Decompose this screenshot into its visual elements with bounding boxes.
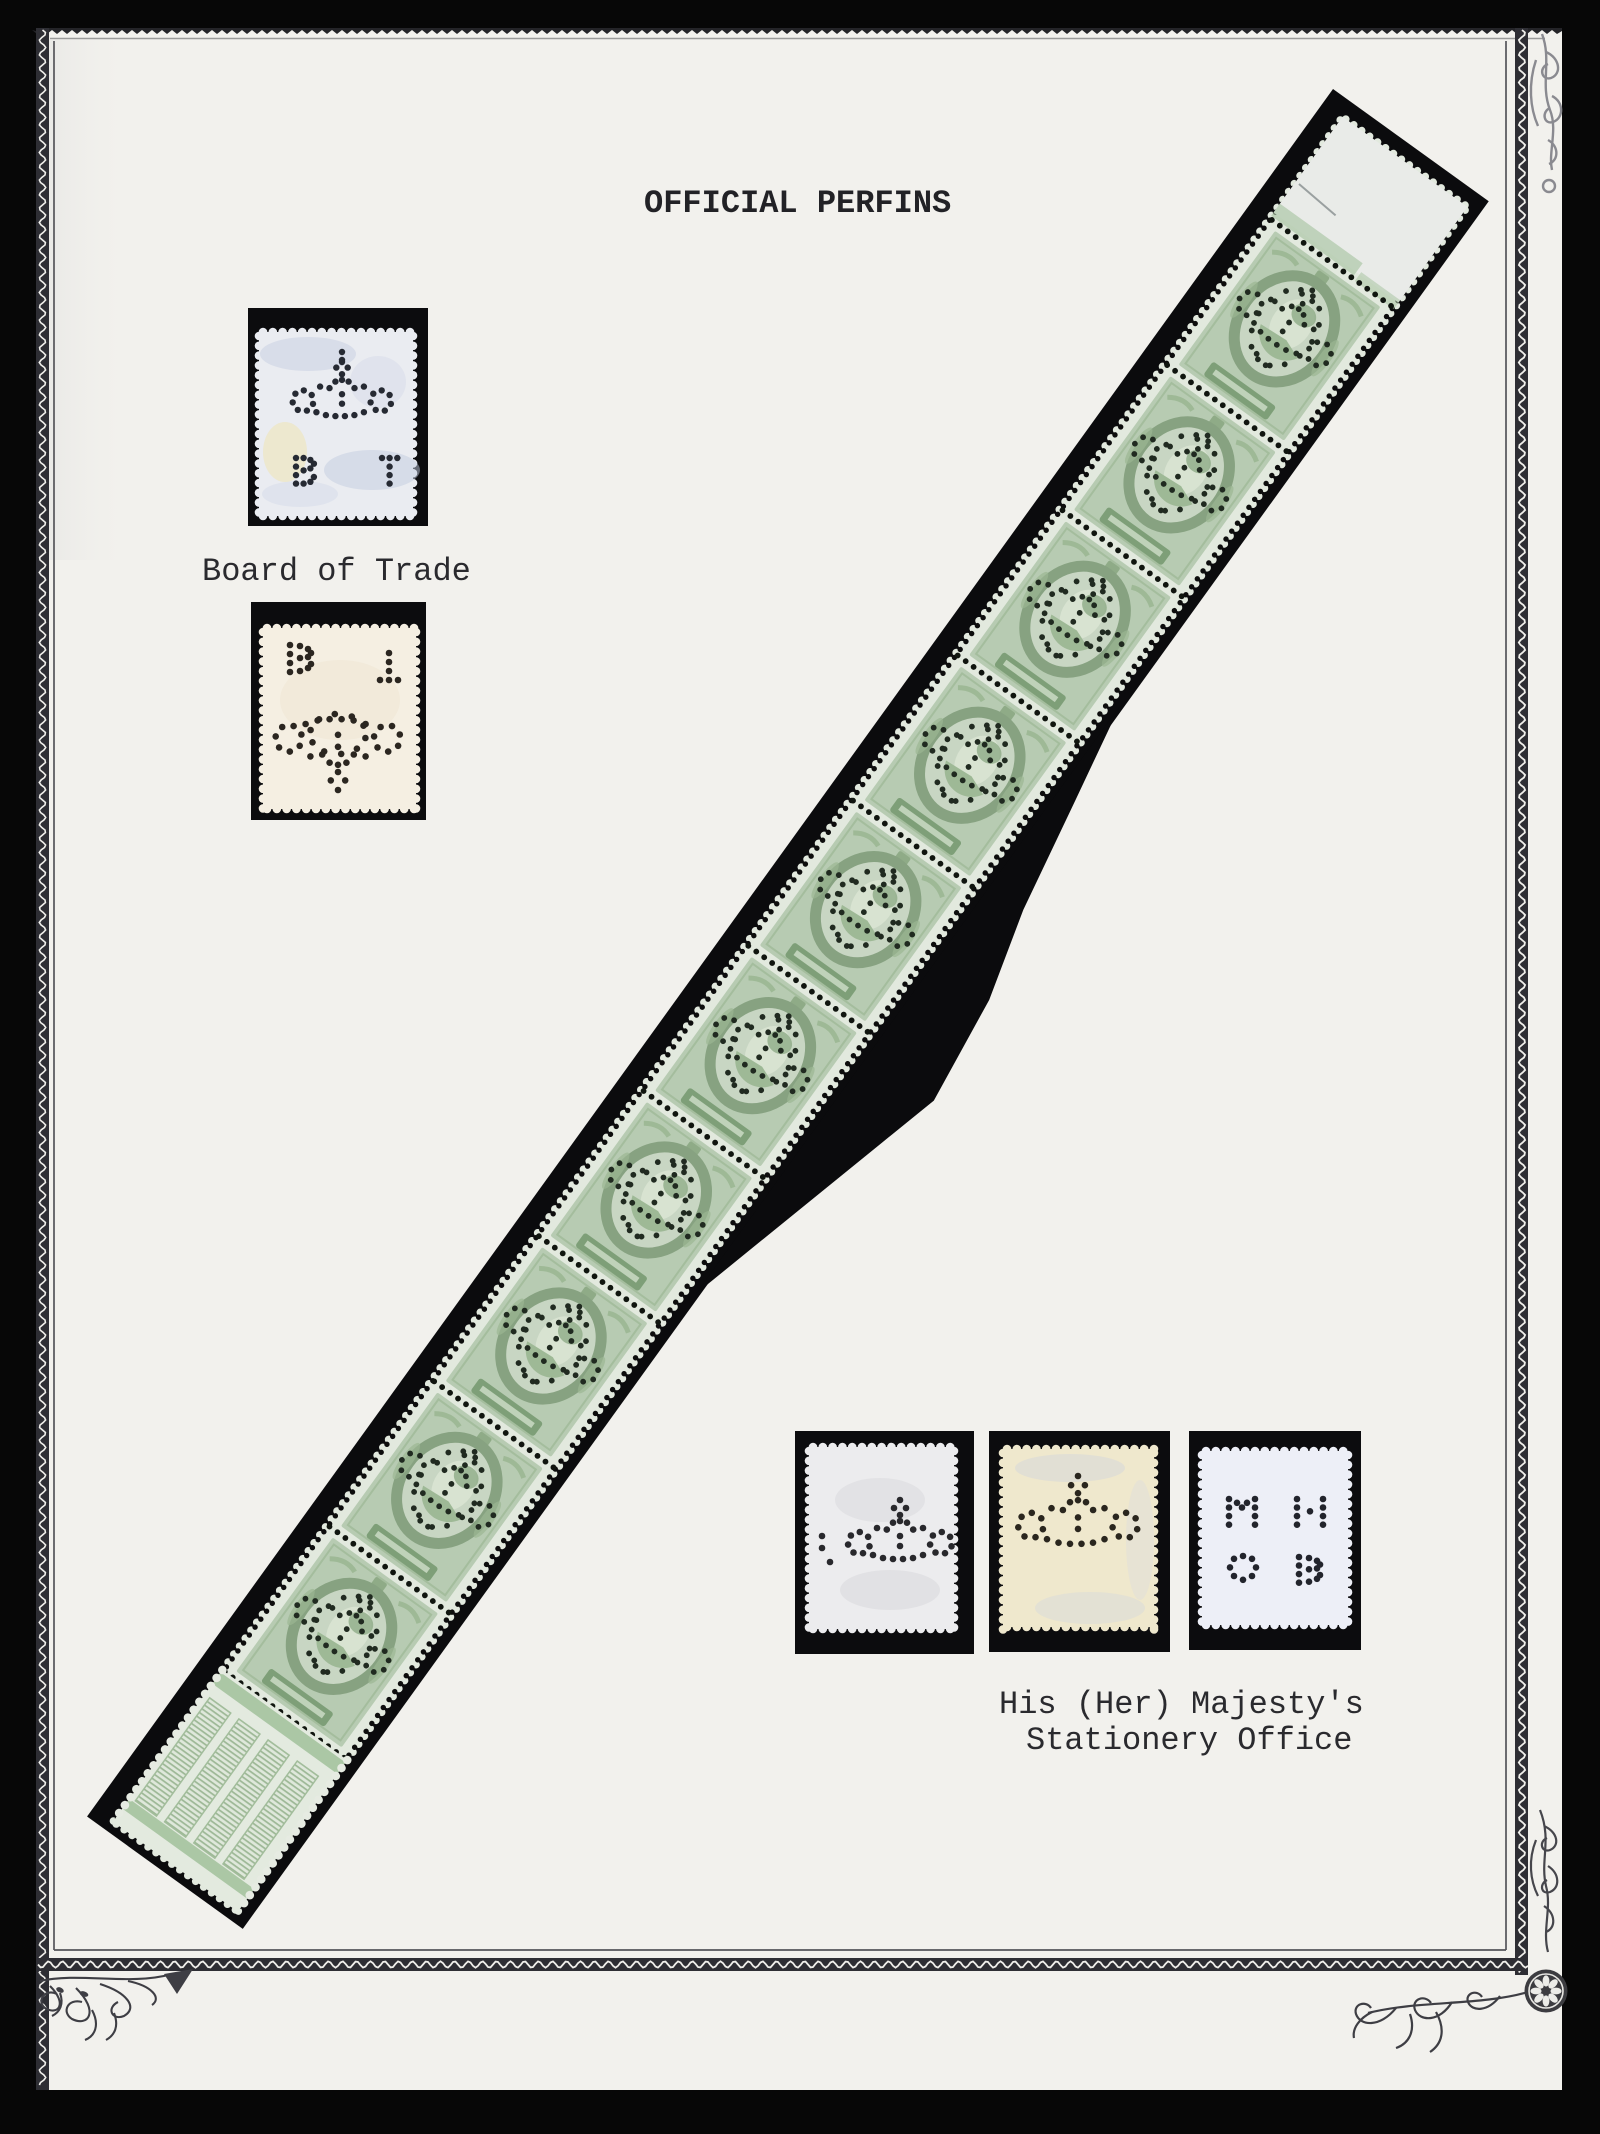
svg-text:OFFICIAL PERFINS: OFFICIAL PERFINS: [644, 185, 951, 222]
svg-text:His (Her) Majesty's: His (Her) Majesty's: [999, 1686, 1364, 1723]
svg-text:Board of Trade: Board of Trade: [202, 553, 471, 590]
svg-text:Stationery Office: Stationery Office: [1026, 1722, 1352, 1759]
